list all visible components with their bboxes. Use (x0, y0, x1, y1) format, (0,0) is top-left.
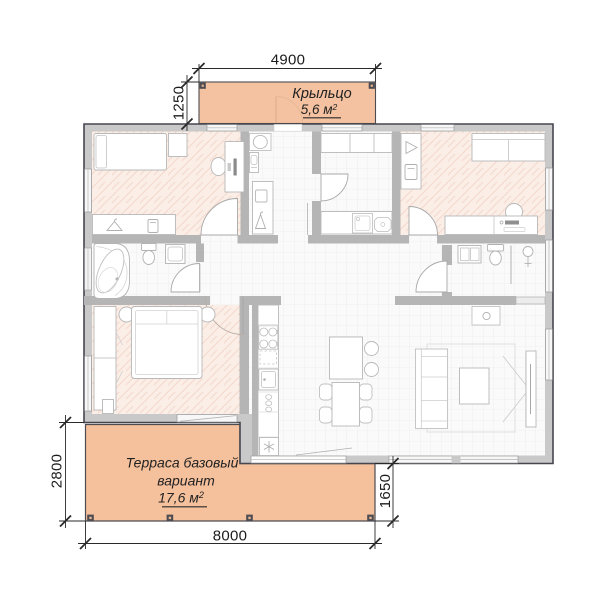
svg-text:Крыльцо: Крыльцо (292, 86, 351, 102)
svg-text:вариант: вариант (157, 473, 215, 489)
svg-text:4900: 4900 (271, 52, 306, 69)
svg-text:5,6 м2: 5,6 м2 (301, 102, 338, 117)
svg-text:2800: 2800 (49, 454, 66, 489)
svg-text:1250: 1250 (171, 86, 188, 121)
svg-text:8000: 8000 (213, 528, 248, 545)
svg-text:Терраса базовый: Терраса базовый (126, 455, 239, 471)
svg-text:1650: 1650 (377, 474, 394, 509)
svg-text:17,6 м2: 17,6 м2 (158, 490, 204, 506)
